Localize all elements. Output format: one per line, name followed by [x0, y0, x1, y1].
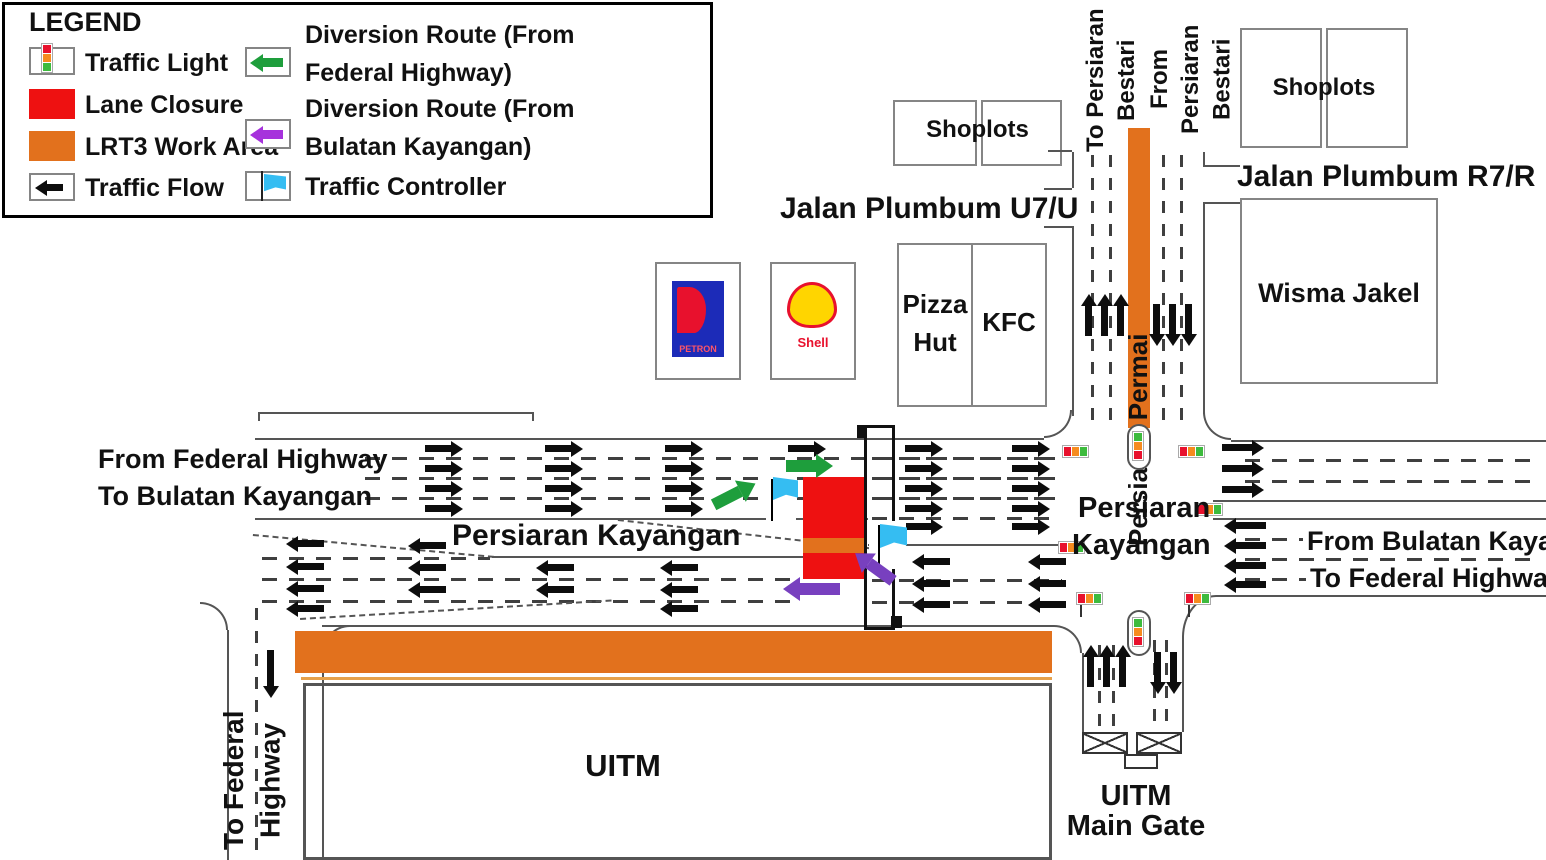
gate-road-left-edge — [1082, 653, 1084, 732]
eastbound-right-top-edge — [1231, 440, 1546, 442]
jalan-plumbum-u7u-label: Jalan Plumbum U7/U — [780, 192, 1064, 227]
diversion-bulatan-arrow-icon — [263, 130, 283, 139]
westbound-right-bottom-edge — [1216, 595, 1546, 597]
green-light-cell — [1134, 619, 1142, 627]
traffic-flow-arrow-east — [425, 445, 451, 452]
orange-light-cell — [43, 54, 51, 62]
wisma-jakel-label: Wisma Jakel — [1240, 278, 1438, 309]
traffic-diversion-diagram: LEGEND Traffic Light Lane Closure LRT3 W… — [0, 0, 1546, 860]
eastbound-top-edge — [255, 438, 1044, 440]
to-federal-highway-v-line1: To Federal — [216, 700, 252, 860]
traffic-flow-arrow-south — [1169, 304, 1176, 334]
traffic-flow-arrow-east — [545, 505, 571, 512]
gate-guard-post — [1124, 754, 1158, 769]
traffic-light-se-post — [1188, 604, 1190, 617]
traffic-flow-arrow-east — [905, 465, 931, 472]
diversion-federal-arrow-icon — [263, 58, 283, 67]
legend-label-diversion-federal-1: Diversion Route (From — [305, 21, 574, 50]
westbound-bottom-edge — [322, 625, 1054, 627]
diversion-arrow-federal — [711, 486, 743, 510]
permai-left-edge-upper — [1072, 152, 1074, 188]
traffic-flow-arrow-south — [1170, 652, 1177, 682]
sidewalk-bracket — [258, 412, 534, 414]
traffic-flow-arrow-west — [924, 601, 950, 608]
diversion-arrow-bulatan — [800, 583, 840, 595]
traffic-flow-arrow-west — [548, 586, 574, 593]
traffic-flow-arrow-east — [425, 465, 451, 472]
traffic-flow-arrow-east — [665, 465, 691, 472]
to-federal-highway-label: To Federal Highway — [1306, 563, 1546, 594]
traffic-flow-arrow-east — [665, 505, 691, 512]
traffic-flow-arrow-west — [1236, 562, 1266, 569]
traffic-flow-arrow-east — [905, 523, 931, 530]
traffic-flow-arrow-east — [1012, 465, 1038, 472]
persiaran-kayangan-label-west: Persiaran Kayangan — [452, 519, 740, 554]
orange-light-cell — [1194, 594, 1201, 603]
from-federal-highway-label: From Federal Highway — [98, 444, 356, 475]
traffic-flow-arrow-west — [924, 558, 950, 565]
uitm-main-gate-label-2: Main Gate — [1066, 810, 1206, 843]
traffic-flow-arrow-west — [298, 540, 324, 547]
traffic-flow-arrow-south — [267, 650, 274, 686]
traffic-flow-arrow-east — [788, 445, 814, 452]
r7r-stub-line-bottom — [1203, 202, 1240, 204]
permai-lane-dash — [1109, 155, 1112, 423]
diversion-arrow-federal — [786, 460, 816, 472]
from-persiaran-bestari-line2: Bestari — [1206, 0, 1237, 158]
legend-label-diversion-bulatan-2: Bulatan Kayangan) — [305, 133, 531, 162]
traffic-controller-pole-1 — [771, 479, 773, 521]
traffic-flow-arrow-east — [425, 485, 451, 492]
traffic-flow-arrow-east — [545, 485, 571, 492]
lrt3-band-underline — [301, 677, 1052, 680]
intersection-corner-sw — [1054, 625, 1082, 653]
eastbound-right-lane-dash — [1245, 459, 1540, 462]
permai-left-edge-lower — [1072, 226, 1074, 416]
permai-lane-dash — [1180, 155, 1183, 423]
red-light-cell — [1060, 543, 1067, 552]
legend-panel: LEGEND Traffic Light Lane Closure LRT3 W… — [2, 2, 713, 218]
traffic-flow-arrow-east — [1222, 465, 1252, 472]
pizza-hut-label-2: Hut — [899, 328, 971, 358]
traffic-flow-arrow-north — [1103, 657, 1110, 687]
traffic-flow-arrow-west — [1040, 601, 1066, 608]
uitm-main-gate-label-1: UITM — [1080, 780, 1192, 813]
green-light-cell — [1134, 433, 1142, 441]
persiaran-kayangan-label-int-2: Kayangan — [1072, 529, 1202, 562]
traffic-flow-arrow-west — [298, 585, 324, 592]
traffic-flow-arrow-north — [1117, 306, 1124, 336]
petron-logo-text: PETRON — [672, 344, 724, 354]
from-bulatan-kayangan-label: From Bulatan Kayangan — [1303, 526, 1546, 557]
traffic-flow-arrow-east — [905, 485, 931, 492]
green-light-cell — [1080, 447, 1087, 456]
eastbound-lane-dash-east — [872, 497, 1060, 500]
shoplots-right-label: Shoplots — [1240, 74, 1408, 102]
legend-label-diversion-bulatan-1: Diversion Route (From — [305, 95, 574, 124]
traffic-flow-arrow-east — [905, 445, 931, 452]
gate-barrier-right — [1136, 732, 1182, 754]
gantry-end-block-bottom — [891, 616, 902, 628]
traffic-flow-arrow-west — [420, 542, 446, 549]
shoplots-top-label: Shoplots — [893, 116, 1062, 144]
orange-light-cell — [1134, 628, 1142, 636]
traffic-flow-arrow-west — [672, 586, 698, 593]
intersection-corner-nw — [1044, 410, 1072, 438]
green-light-cell — [1202, 594, 1209, 603]
red-light-cell — [1064, 447, 1071, 456]
median-right-line — [1213, 518, 1546, 520]
sidewalk-bracket-tick — [532, 412, 534, 421]
pizza-hut-label-1: Pizza — [899, 290, 971, 320]
eastbound-lane-dash — [872, 517, 1058, 520]
orange-light-cell — [1134, 442, 1142, 450]
traffic-light-sw — [1076, 592, 1103, 605]
kfc-label: KFC — [973, 308, 1045, 338]
permai-right-edge-lower — [1203, 202, 1205, 414]
uitm-campus-label: UITM — [303, 748, 943, 784]
petron-logo-swoosh — [677, 287, 706, 333]
traffic-flow-arrow-west — [1040, 558, 1066, 565]
traffic-flow-arrow-west — [1040, 580, 1066, 587]
legend-label-traffic-controller: Traffic Controller — [305, 173, 506, 202]
westbound-lane-dash — [262, 600, 798, 603]
eastbound-right-lane-dash — [1245, 480, 1540, 483]
from-persiaran-bestari-label: From Persiaran Bestari — [1144, 0, 1238, 158]
legend-label-lane-closure: Lane Closure — [85, 91, 243, 120]
traffic-flow-arrow-east — [905, 505, 931, 512]
traffic-flow-arrow-west — [298, 605, 324, 612]
orange-light-cell — [1072, 447, 1079, 456]
traffic-flow-arrow-east — [1012, 523, 1038, 530]
traffic-flow-arrow-west — [1236, 542, 1266, 549]
gantry-end-block-top — [857, 425, 865, 438]
traffic-flow-arrow-north — [1101, 306, 1108, 336]
lrt3-work-area-band — [295, 631, 1052, 673]
sidewalk-bracket-tick — [258, 412, 260, 421]
traffic-light-ne — [1178, 445, 1205, 458]
permai-lane-dash — [1162, 155, 1165, 423]
red-light-cell — [1078, 594, 1085, 603]
traffic-flow-arrow-east — [545, 445, 571, 452]
traffic-flow-arrow-east — [1012, 445, 1038, 452]
eastbound-lane-dash-east — [872, 457, 1060, 460]
traffic-flow-arrow-east — [425, 505, 451, 512]
red-light-cell — [1180, 447, 1187, 456]
lane-closure-swatch — [29, 89, 75, 119]
red-light-cell — [43, 45, 51, 53]
lrt3-work-area-swatch — [29, 131, 75, 161]
traffic-flow-arrow-north — [1085, 306, 1092, 336]
to-federal-highway-v-line2: Highway — [252, 700, 288, 860]
traffic-light-island-south — [1132, 617, 1144, 647]
traffic-flow-arrow-east — [665, 445, 691, 452]
traffic-flow-arrow-west — [1236, 581, 1266, 588]
bestari-leader-line — [1048, 150, 1072, 152]
traffic-flow-arrow-east — [665, 485, 691, 492]
shell-logo — [787, 282, 837, 328]
r7r-stub-line-top — [1203, 165, 1240, 167]
traffic-light-sw-post — [1080, 604, 1082, 617]
traffic-flow-arrow-west — [672, 605, 698, 612]
legend-label-traffic-flow: Traffic Flow — [85, 174, 224, 203]
orange-light-cell — [1086, 594, 1093, 603]
legend-title: LEGEND — [29, 7, 142, 38]
legend-label-diversion-federal-2: Federal Highway) — [305, 59, 512, 88]
traffic-flow-arrow-west — [672, 564, 698, 571]
to-persiaran-bestari-line1: To Persiaran — [1080, 6, 1111, 154]
to-bulatan-kayangan-label: To Bulatan Kayangan — [98, 481, 358, 512]
red-light-cell — [1134, 451, 1142, 459]
to-federal-highway-vertical-label: To Federal Highway — [216, 700, 289, 860]
gate-road-lane-dash — [1098, 645, 1101, 729]
traffic-light-icon — [41, 43, 53, 73]
u7u-stub-line-top — [1044, 188, 1072, 190]
green-light-cell — [1214, 505, 1221, 514]
permai-lane-dash — [1091, 155, 1094, 423]
traffic-flow-arrow-north — [1087, 657, 1094, 687]
traffic-light-island-north — [1132, 431, 1144, 461]
traffic-flow-arrow-east — [545, 465, 571, 472]
intersection-corner-ne — [1203, 412, 1231, 440]
westbound-right-lane-dash — [1245, 558, 1540, 561]
traffic-flow-arrow-west — [1236, 522, 1266, 529]
red-light-cell — [1186, 594, 1193, 603]
traffic-light-se — [1184, 592, 1211, 605]
traffic-flow-icon — [47, 184, 63, 191]
persiaran-kayangan-label-int-1: Persiaran — [1078, 492, 1202, 525]
traffic-light-nw — [1062, 445, 1089, 458]
traffic-flow-arrow-west — [298, 563, 324, 570]
traffic-flow-arrow-east — [1222, 486, 1252, 493]
gate-barrier-left — [1082, 732, 1128, 754]
green-light-cell — [43, 63, 51, 71]
shell-logo-text: Shell — [775, 336, 851, 351]
traffic-flow-arrow-north — [1119, 657, 1126, 687]
orange-light-cell — [1188, 447, 1195, 456]
traffic-flow-arrow-west — [420, 586, 446, 593]
traffic-flow-arrow-east — [1012, 485, 1038, 492]
traffic-flow-arrow-west — [924, 580, 950, 587]
traffic-flow-arrow-east — [1222, 444, 1252, 451]
traffic-flow-arrow-east — [1012, 505, 1038, 512]
eastbound-lane-dash-east — [872, 477, 1060, 480]
eastbound-right-bottom-edge — [1213, 500, 1546, 502]
gate-road-right-edge — [1182, 637, 1184, 732]
traffic-flow-arrow-south — [1185, 304, 1192, 334]
traffic-flow-arrow-south — [1154, 652, 1161, 682]
gate-road-lane-dash — [1112, 645, 1115, 729]
green-light-cell — [1196, 447, 1203, 456]
jalan-plumbum-r7r-label: Jalan Plumbum R7/R — [1237, 160, 1535, 195]
traffic-flow-arrow-west — [420, 564, 446, 571]
westbound-lane-dash — [262, 578, 798, 581]
legend-label-traffic-light: Traffic Light — [85, 49, 228, 78]
flag-pole-icon — [261, 171, 263, 201]
red-light-cell — [1134, 637, 1142, 645]
from-persiaran-bestari-line1: From Persiaran — [1144, 0, 1206, 158]
sw-road-outer-curve — [200, 602, 228, 630]
traffic-flow-arrow-south — [1153, 304, 1160, 334]
traffic-flow-arrow-west — [548, 564, 574, 571]
green-light-cell — [1094, 594, 1101, 603]
